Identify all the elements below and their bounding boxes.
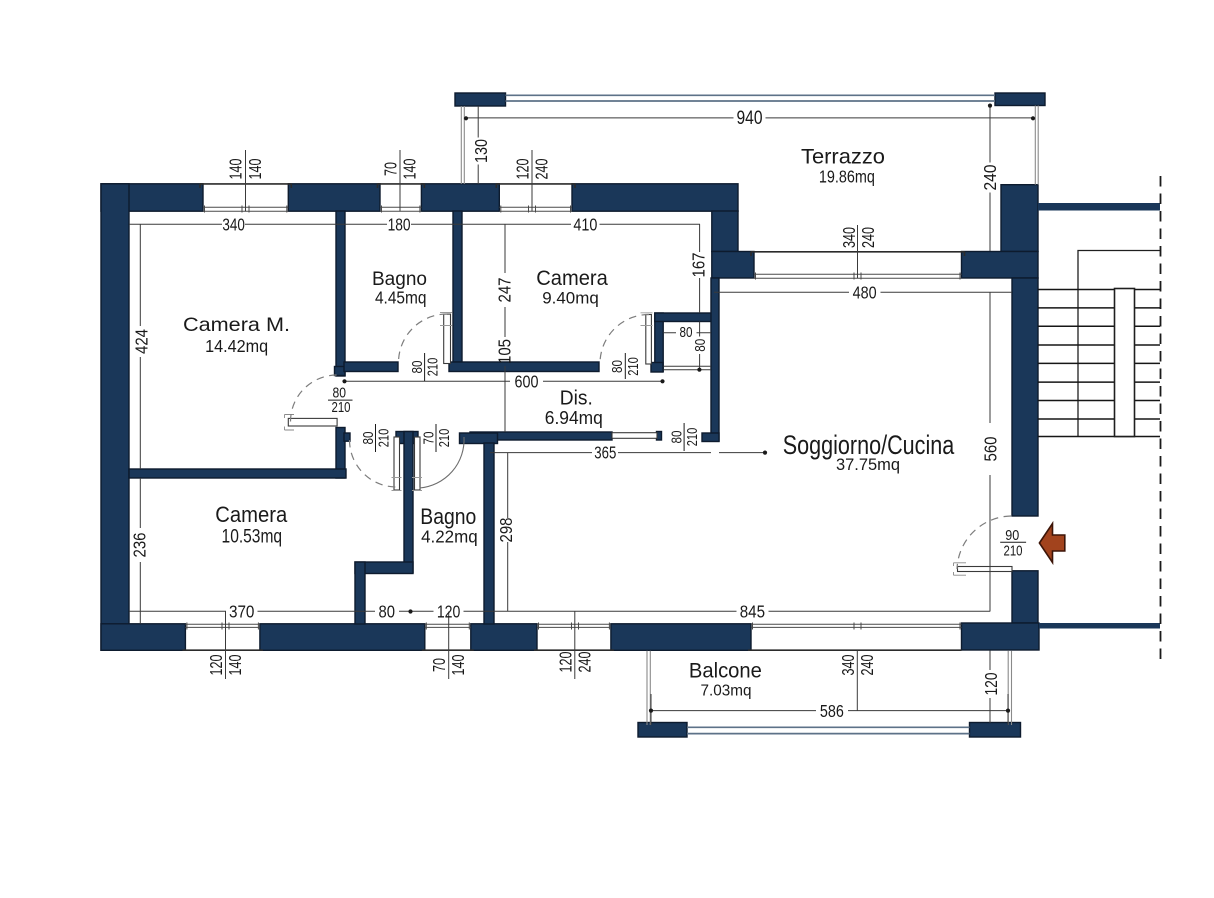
svg-text:210: 210 [684, 428, 701, 447]
svg-text:210: 210 [376, 429, 393, 448]
svg-text:600: 600 [515, 371, 539, 391]
svg-text:80: 80 [609, 360, 626, 373]
svg-text:140: 140 [399, 158, 419, 179]
svg-text:105: 105 [495, 339, 515, 364]
svg-text:Camera: Camera [536, 266, 608, 290]
svg-text:365: 365 [594, 443, 616, 463]
svg-text:70: 70 [429, 658, 449, 672]
svg-text:4.22mq: 4.22mq [421, 527, 478, 547]
svg-text:140: 140 [225, 654, 245, 675]
svg-text:80: 80 [360, 432, 377, 445]
svg-text:90: 90 [1005, 527, 1019, 544]
svg-text:140: 140 [226, 158, 246, 179]
svg-text:80: 80 [379, 602, 396, 622]
svg-text:120: 120 [981, 672, 1001, 695]
svg-text:210: 210 [436, 429, 453, 448]
svg-text:940: 940 [737, 108, 763, 129]
svg-text:240: 240 [980, 164, 1000, 190]
svg-text:140: 140 [245, 158, 265, 179]
svg-text:130: 130 [471, 139, 491, 163]
svg-text:210: 210 [332, 399, 351, 416]
svg-text:Camera: Camera [215, 502, 288, 527]
svg-text:247: 247 [495, 278, 515, 303]
svg-text:9.40mq: 9.40mq [542, 289, 599, 308]
svg-text:10.53mq: 10.53mq [222, 526, 283, 548]
svg-text:70: 70 [421, 432, 438, 445]
svg-text:240: 240 [857, 654, 877, 675]
svg-text:845: 845 [740, 602, 765, 622]
svg-text:14.42mq: 14.42mq [205, 336, 268, 356]
svg-text:180: 180 [388, 215, 411, 235]
svg-text:120: 120 [437, 602, 461, 622]
svg-text:80: 80 [692, 339, 709, 352]
svg-text:210: 210 [1004, 543, 1023, 560]
svg-text:167: 167 [689, 253, 709, 278]
svg-text:7.03mq: 7.03mq [701, 683, 752, 700]
svg-text:240: 240 [574, 651, 594, 672]
svg-text:210: 210 [425, 358, 442, 377]
svg-text:70: 70 [380, 162, 400, 176]
svg-text:480: 480 [853, 283, 877, 303]
svg-text:240: 240 [532, 158, 552, 179]
svg-text:Dis.: Dis. [560, 386, 593, 409]
svg-text:340: 340 [839, 227, 859, 248]
svg-text:6.94mq: 6.94mq [545, 407, 603, 428]
svg-text:370: 370 [229, 602, 255, 622]
svg-text:37.75mq: 37.75mq [836, 455, 900, 474]
svg-text:120: 120 [513, 158, 533, 179]
svg-text:210: 210 [625, 357, 642, 376]
svg-text:4.45mq: 4.45mq [375, 287, 427, 307]
svg-text:140: 140 [448, 654, 468, 675]
svg-text:298: 298 [496, 518, 516, 543]
svg-text:19.86mq: 19.86mq [819, 166, 875, 186]
svg-text:340: 340 [222, 215, 245, 235]
svg-text:236: 236 [130, 533, 150, 558]
svg-text:80: 80 [680, 324, 693, 341]
svg-text:424: 424 [132, 329, 152, 354]
svg-text:80: 80 [409, 361, 426, 374]
svg-text:240: 240 [858, 227, 878, 248]
svg-text:586: 586 [820, 701, 844, 721]
svg-text:410: 410 [573, 214, 597, 234]
svg-text:120: 120 [555, 651, 575, 672]
svg-text:560: 560 [981, 436, 1001, 461]
svg-text:120: 120 [206, 654, 226, 675]
svg-text:Terrazzo: Terrazzo [801, 144, 885, 168]
svg-text:Camera M.: Camera M. [183, 314, 290, 336]
svg-text:Bagno: Bagno [420, 504, 476, 529]
svg-text:Balcone: Balcone [689, 660, 762, 683]
svg-text:340: 340 [838, 654, 858, 675]
